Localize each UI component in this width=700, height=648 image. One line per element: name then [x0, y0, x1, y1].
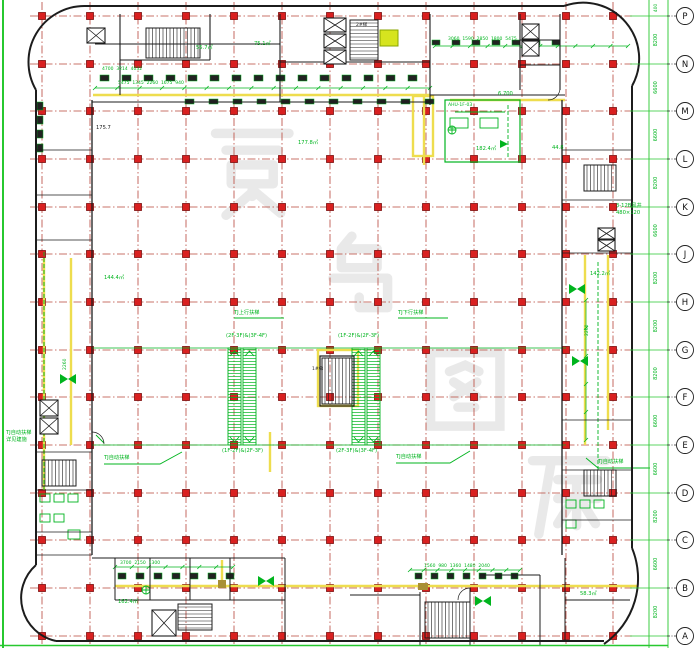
column-marker [135, 108, 142, 115]
column-marker [563, 251, 570, 258]
axis-dim-label: 8200 [653, 272, 659, 285]
fan-coil-unit [172, 573, 180, 579]
column-marker [231, 13, 238, 20]
axis-bubble-label: P [682, 12, 687, 22]
column-marker [87, 13, 94, 20]
column-marker [375, 490, 382, 497]
pipe-runs [44, 30, 638, 590]
elevator-icon [40, 418, 58, 434]
fan-coil-unit [431, 573, 438, 579]
structural-grid [30, 2, 632, 644]
column-marker [423, 251, 430, 258]
column-marker [231, 108, 238, 115]
fan-coil-unit [512, 40, 520, 45]
column-marker [375, 204, 382, 211]
column-marker [135, 537, 142, 544]
column-marker [563, 108, 570, 115]
fan-coil-unit [208, 573, 216, 579]
column-marker [471, 299, 478, 306]
column-marker [231, 204, 238, 211]
axis-dim-label: 8200 [653, 510, 659, 523]
column-marker [183, 13, 190, 20]
fan-coil-unit [472, 40, 480, 45]
column-marker [183, 156, 190, 163]
column-marker [563, 537, 570, 544]
fan-coil-unit [232, 75, 241, 81]
column-marker [519, 299, 526, 306]
column-marker [471, 394, 478, 401]
fan-coil-unit [154, 573, 162, 579]
elevator-icon [324, 18, 346, 32]
column-marker [183, 204, 190, 211]
column-marker [87, 633, 94, 640]
column-marker [423, 13, 430, 20]
fan-coil-unit [37, 102, 43, 110]
fan-coil-unit [254, 75, 263, 81]
column-marker [563, 490, 570, 497]
column-marker [327, 108, 334, 115]
column-marker [279, 204, 286, 211]
column-marker [375, 13, 382, 20]
column-marker [423, 537, 430, 544]
column-marker [610, 394, 617, 401]
stair [42, 460, 76, 486]
axis-dim-label: 6600 [653, 129, 659, 142]
column-marker [375, 537, 382, 544]
column-marker [471, 537, 478, 544]
column-marker [231, 537, 238, 544]
fan-coil-unit [432, 40, 440, 45]
axis-bubble-label: D [682, 489, 689, 499]
axis-dim-label: 6600 [653, 224, 659, 237]
column-marker [327, 204, 334, 211]
column-marker [279, 251, 286, 258]
fan-coil-unit [463, 573, 470, 579]
column-marker [39, 13, 46, 20]
escalator-bank-right [352, 348, 380, 445]
column-marker [279, 156, 286, 163]
column-marker [375, 251, 382, 258]
column-marker [135, 13, 142, 20]
axis-bubble-label: F [683, 393, 688, 403]
axis-dim-label: 8200 [653, 606, 659, 619]
column-marker [279, 394, 286, 401]
column-marker [39, 156, 46, 163]
axis-bubble-label: L [683, 155, 688, 165]
axis-bubble-label: C [682, 536, 688, 546]
column-marker [563, 299, 570, 306]
column-marker [610, 61, 617, 68]
column-marker [231, 633, 238, 640]
column-marker [231, 299, 238, 306]
axis-dim-label: 6600 [653, 415, 659, 428]
fan-coil-strips [37, 40, 560, 579]
column-marker [610, 490, 617, 497]
column-marker [563, 347, 570, 354]
column-marker [39, 61, 46, 68]
column-marker [610, 204, 617, 211]
elevator-icon [152, 610, 176, 636]
column-marker [279, 537, 286, 544]
column-marker [327, 156, 334, 163]
column-marker [231, 251, 238, 258]
axis-dim-label: 6600 [653, 558, 659, 571]
elevator-icon [598, 228, 615, 239]
column-marker [375, 156, 382, 163]
fan-coil-unit [511, 573, 518, 579]
elevator-icon [522, 41, 539, 56]
corner-tower-topright [564, 3, 639, 86]
fan-coil-unit [144, 75, 153, 81]
fan-coil-unit [210, 75, 219, 81]
column-marker [39, 537, 46, 544]
fan-coil-unit [479, 573, 486, 579]
fan-coil-unit [136, 573, 144, 579]
corner-tower-bottomright [604, 548, 638, 644]
stair [146, 28, 200, 58]
axis-bubble-label: K [682, 203, 688, 213]
column-marker [375, 633, 382, 640]
column-marker [471, 204, 478, 211]
column-marker [279, 490, 286, 497]
axis-dim-label: 6600 [653, 463, 659, 476]
column-marker [183, 299, 190, 306]
axis-dim-label: 8200 [653, 34, 659, 47]
column-marker [519, 347, 526, 354]
column-marker [327, 299, 334, 306]
column-marker [327, 633, 334, 640]
fan-coil-unit [298, 75, 307, 81]
column-marker [423, 204, 430, 211]
fan-coil-unit [552, 40, 560, 45]
column-marker [519, 204, 526, 211]
axis-bubble-label: G [682, 346, 689, 356]
fan-coil-unit [37, 116, 43, 124]
column-marker [135, 251, 142, 258]
fan-coil-unit [452, 40, 460, 45]
column-marker [231, 156, 238, 163]
elevator-icon [522, 24, 539, 39]
column-marker [519, 537, 526, 544]
axis-bubble-label: M [681, 107, 688, 117]
hvac-green-layer [40, 100, 650, 606]
fan-coil-unit [386, 75, 395, 81]
column-marker [471, 490, 478, 497]
elevator-icon [324, 50, 346, 64]
column-marker [135, 299, 142, 306]
column-marker [423, 347, 430, 354]
column-marker [183, 394, 190, 401]
column-marker [135, 156, 142, 163]
column-marker [471, 13, 478, 20]
watermark [216, 133, 607, 534]
axis-bubble-label: B [682, 584, 688, 594]
elevator-icon [87, 28, 105, 43]
column-marker [563, 156, 570, 163]
column-marker [375, 108, 382, 115]
floorplan-drawing: PNMLKJHGFEDCBA82006600660082006600820082… [0, 0, 700, 648]
axis-bubble-label: J [683, 250, 687, 260]
elevator-icon [598, 240, 615, 251]
column-marker [327, 490, 334, 497]
fixtures [40, 494, 604, 539]
elevator-icon [324, 34, 346, 48]
escalator-bank-left [228, 348, 256, 445]
fan-coil-unit [447, 573, 454, 579]
column-marker [279, 633, 286, 640]
column-marker [610, 442, 617, 449]
column-marker [375, 299, 382, 306]
axis-bubbles: PNMLKJHGFEDCBA82006600660082006600820082… [630, 4, 694, 645]
column-marker [471, 251, 478, 258]
fan-coil-unit [122, 75, 131, 81]
column-marker [563, 633, 570, 640]
column-marker [135, 394, 142, 401]
column-marker [87, 585, 94, 592]
column-marker [135, 490, 142, 497]
column-marker [135, 61, 142, 68]
column-marker [39, 585, 46, 592]
column-marker [471, 347, 478, 354]
axis-bubble-label: A [682, 632, 688, 642]
stair [350, 20, 378, 60]
fan-coil-unit [364, 75, 373, 81]
column-marker [183, 537, 190, 544]
column-marker [563, 394, 570, 401]
stair [425, 602, 470, 638]
column-marker [610, 156, 617, 163]
column-marker [610, 347, 617, 354]
column-marker [183, 633, 190, 640]
axis-bubble-label: E [682, 441, 687, 451]
column-marker [279, 347, 286, 354]
column-marker [135, 633, 142, 640]
column-marker [327, 394, 334, 401]
column-marker [39, 204, 46, 211]
column-marker [231, 490, 238, 497]
stair [178, 604, 212, 630]
fan-coil-unit [415, 573, 422, 579]
cad-floorplan-view: PNMLKJHGFEDCBA82006600660082006600820082… [0, 0, 700, 648]
column-marker [471, 108, 478, 115]
column-marker [279, 108, 286, 115]
column-marker [327, 251, 334, 258]
fan-coil-unit [190, 573, 198, 579]
axis-dim-label: 6600 [653, 81, 659, 94]
column-marker [183, 347, 190, 354]
column-marker [519, 633, 526, 640]
axis-dim-label: 8200 [653, 320, 659, 333]
fan-coil-unit [37, 144, 43, 152]
column-marker [610, 537, 617, 544]
fan-coil-unit [320, 75, 329, 81]
column-marker [183, 490, 190, 497]
column-marker [327, 537, 334, 544]
column-marker [610, 108, 617, 115]
column-marker [135, 204, 142, 211]
fan-coil-unit [118, 573, 126, 579]
column-marker [135, 347, 142, 354]
column-marker [423, 394, 430, 401]
column-marker [423, 299, 430, 306]
axis-bubble-label: N [682, 60, 688, 70]
column-marker [563, 204, 570, 211]
column-marker [519, 394, 526, 401]
axis-dim-label: 8200 [653, 367, 659, 380]
column-marker [563, 61, 570, 68]
column-marker [279, 299, 286, 306]
column-marker [471, 61, 478, 68]
fan-coil-unit [100, 75, 109, 81]
column-marker [231, 61, 238, 68]
drawing-frame [0, 0, 668, 648]
fan-coil-unit [166, 75, 175, 81]
fan-coil-unit [408, 75, 417, 81]
column-marker [610, 251, 617, 258]
column-marker [519, 251, 526, 258]
fan-coil-unit [492, 40, 500, 45]
fan-coil-unit [37, 130, 43, 138]
stair [584, 165, 616, 191]
axis-dim-label: 400 [653, 4, 659, 13]
column-marker [610, 299, 617, 306]
elevator-icon [40, 400, 58, 416]
fan-coil-unit [495, 573, 502, 579]
axis-bubble-label: H [682, 298, 688, 308]
fan-coil-unit [342, 75, 351, 81]
column-marker [39, 490, 46, 497]
column-marker [183, 108, 190, 115]
column-marker [423, 490, 430, 497]
column-marker [471, 633, 478, 640]
fan-coil-unit [188, 75, 197, 81]
column-marker [519, 490, 526, 497]
column-marker [87, 61, 94, 68]
column-marker [563, 13, 570, 20]
corner-tower-topleft [28, 6, 85, 90]
axis-dim-label: 8200 [653, 177, 659, 190]
corner-tower-bottomleft [21, 565, 56, 641]
diffuser-icon [142, 126, 456, 594]
column-marker [183, 61, 190, 68]
column-marker [183, 251, 190, 258]
